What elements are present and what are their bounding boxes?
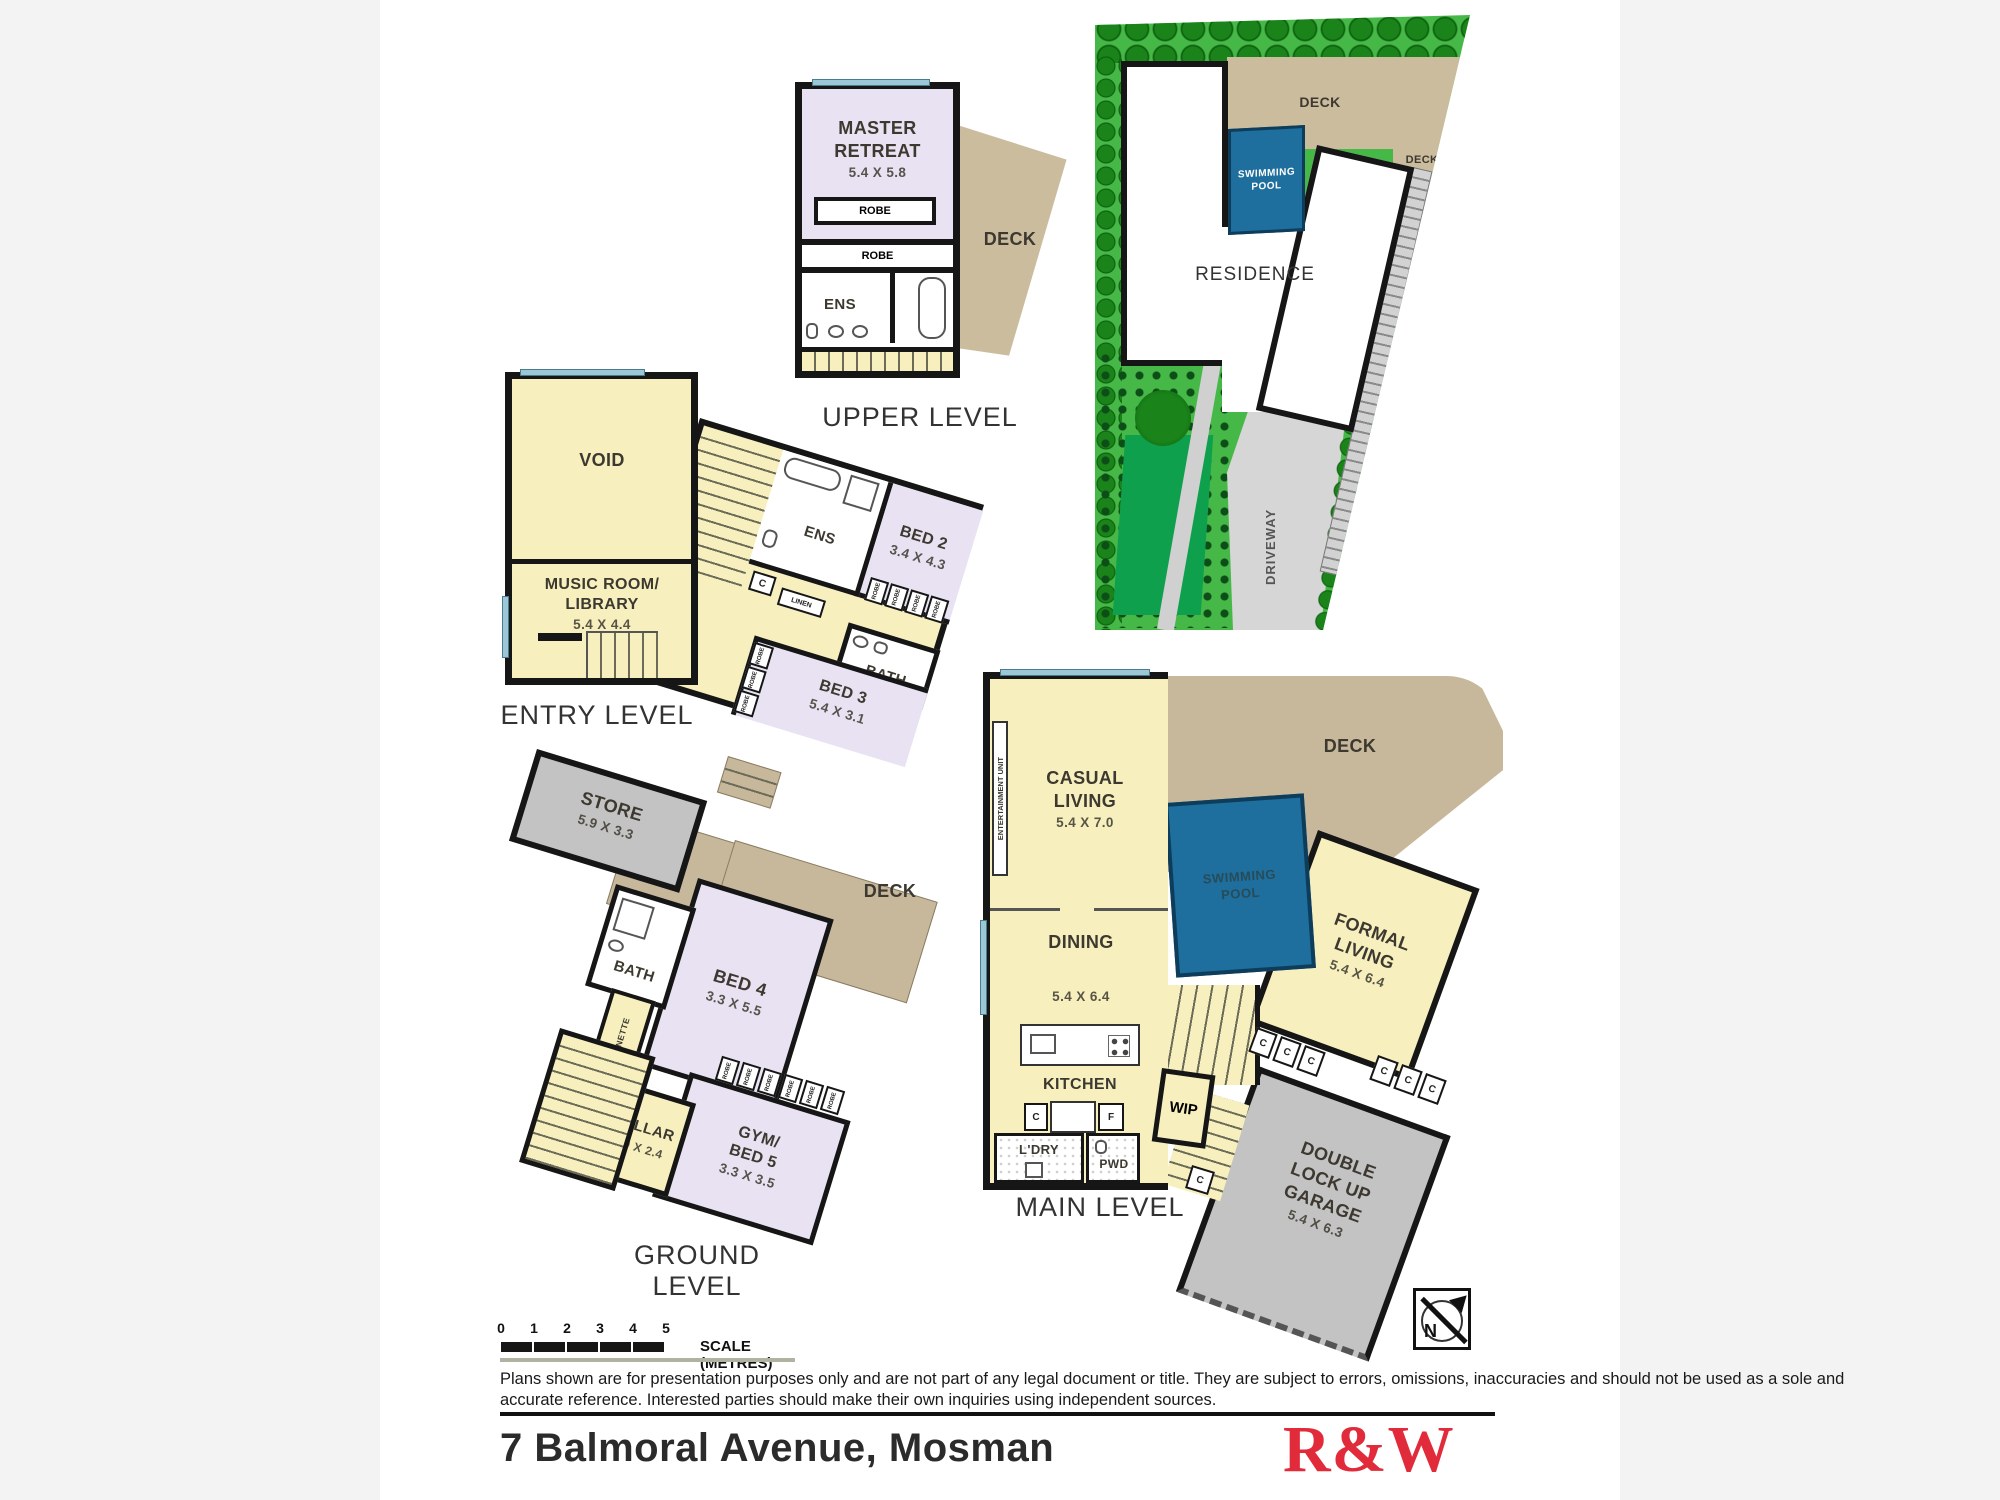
store-label: STORE5.9 X 3.3	[533, 775, 684, 859]
kitchen-label: KITCHEN	[1022, 1075, 1138, 1095]
site-pool-label: SWIMMINGPOOL	[1238, 165, 1295, 194]
washer-icon	[1025, 1162, 1043, 1178]
main-pool: SWIMMINGPOOL	[1164, 793, 1316, 977]
fridge-tag: F	[1098, 1103, 1124, 1131]
main-pool-label: SWIMMINGPOOL	[1202, 866, 1278, 905]
powder-label: PWD	[1091, 1154, 1137, 1174]
entertainment-unit-label: ENTERTAINMENT UNIT	[996, 757, 1005, 840]
entry-ens-label: ENS	[788, 518, 851, 555]
site-residence-label: RESIDENCE	[1185, 263, 1325, 287]
entry-void-music-block: VOID MUSIC ROOM/LIBRARY5.4 X 4.4	[505, 372, 698, 685]
site-pool: SWIMMINGPOOL	[1228, 125, 1305, 235]
floorplan-page: DECK MASTER RETREAT5.4 X 5.8 ROBE ROBE E…	[0, 0, 2000, 1500]
ground-deck-label: DECK	[845, 880, 935, 903]
basin-icon	[607, 938, 626, 954]
entry-bed2-label: BED 23.4 X 4.3	[874, 516, 968, 579]
upper-deck-label: DECK	[965, 228, 1055, 251]
bathtub-icon	[781, 455, 843, 493]
casual-living-label: CASUALLIVING5.4 X 7.0	[1030, 767, 1140, 833]
void-label: VOID	[532, 449, 672, 472]
entry-linen-tag: LINEN	[777, 587, 826, 618]
wip-label: WIP	[1168, 1098, 1198, 1119]
bathtub-icon	[918, 277, 946, 339]
music-shelf	[538, 633, 582, 641]
shower-icon	[612, 897, 654, 939]
basin-icon	[828, 325, 844, 338]
disclaimer-line-1: Plans shown are for presentation purpose…	[500, 1370, 1844, 1389]
agency-logo: R&W	[1283, 1412, 1455, 1488]
toilet-icon	[806, 323, 818, 339]
formal-living-label: FORMALLIVING5.4 X 6.4	[1307, 904, 1424, 1000]
scale-units-label: SCALE (METRES)	[700, 1338, 772, 1372]
master-retreat-label: MASTER RETREAT5.4 X 5.8	[810, 117, 945, 183]
entry-bed3-label: BED 35.4 X 3.1	[786, 669, 893, 736]
garage-label: DOUBLELOCK UPGARAGE5.4 X 6.3	[1256, 1129, 1399, 1254]
hall-robe-strip: ROBE	[802, 239, 953, 273]
entry-window-top	[520, 369, 645, 376]
scale-tick-label: 4	[626, 1320, 640, 1336]
ensuite-area: ENS	[802, 273, 953, 347]
disclaimer-line-2: accurate reference. Interested parties s…	[500, 1391, 1216, 1410]
basin-icon	[851, 634, 870, 650]
upper-window	[812, 79, 930, 86]
entry-window-left	[502, 596, 509, 658]
laundry-label: L'DRY	[1001, 1140, 1077, 1160]
powder-room: PWD	[1086, 1133, 1140, 1183]
casual-dining-divider	[990, 908, 1060, 911]
kitchen-c-tag: C	[1024, 1103, 1048, 1131]
toilet-icon	[760, 528, 779, 549]
toilet-icon	[1095, 1140, 1107, 1154]
property-address: 7 Balmoral Avenue, Mosman	[500, 1426, 1054, 1471]
site-driveway-label: DRIVEWAY	[1263, 465, 1278, 585]
scale-tick-label: 3	[593, 1320, 607, 1336]
scale-tick-label: 5	[659, 1320, 673, 1336]
kitchen-island	[1020, 1024, 1140, 1066]
void-music-divider	[512, 559, 691, 564]
ground-bath-label: BATH	[602, 954, 665, 991]
main-window-top	[1000, 669, 1150, 676]
kitchen-counter	[1050, 1101, 1096, 1133]
casual-dining-divider	[1094, 908, 1168, 911]
scale-bar	[501, 1342, 666, 1352]
shower-icon	[842, 475, 879, 512]
basin-icon	[852, 325, 868, 338]
north-label: N	[1424, 1321, 1437, 1342]
scale-tick-label: 2	[560, 1320, 574, 1336]
wip-pantry: WIP	[1152, 1068, 1216, 1149]
north-compass: N	[1413, 1288, 1471, 1350]
entertainment-unit: ENTERTAINMENT UNIT	[992, 721, 1008, 876]
upper-level-title: UPPER LEVEL	[820, 402, 1020, 433]
scale-tick-label: 1	[527, 1320, 541, 1336]
toilet-icon	[872, 640, 889, 656]
entry-level-title: ENTRY LEVEL	[497, 700, 697, 731]
sink-icon	[1030, 1034, 1056, 1054]
scale-tick-label: 0	[494, 1320, 508, 1336]
upper-stairs	[802, 347, 953, 371]
bed4-label: BED 43.3 X 5.5	[683, 958, 791, 1028]
master-robe-box: ROBE	[814, 197, 936, 225]
main-window-left	[980, 920, 987, 1015]
site-big-tree-icon	[1135, 390, 1191, 446]
scale-underline	[500, 1358, 795, 1362]
site-deck-label: DECK	[1280, 93, 1360, 113]
music-stairs	[586, 631, 658, 678]
ground-level-title: GROUND LEVEL	[592, 1240, 802, 1302]
music-room-label: MUSIC ROOM/LIBRARY5.4 X 4.4	[520, 575, 684, 635]
master-retreat-room: MASTER RETREAT5.4 X 5.8 ROBE ROBE ENS	[795, 82, 960, 378]
main-level-title: MAIN LEVEL	[1010, 1192, 1190, 1223]
cooktop-icon	[1108, 1035, 1130, 1057]
entry-c-tag: C	[748, 570, 777, 596]
dining-dim-label: 5.4 X 6.4	[1026, 987, 1136, 1007]
ensuite-label: ENS	[810, 295, 870, 315]
gym-bed5-label: GYM/BED 53.3 X 3.5	[696, 1114, 809, 1201]
laundry-room: L'DRY	[994, 1133, 1084, 1183]
main-left-block: ENTERTAINMENT UNIT CASUALLIVING5.4 X 7.0…	[983, 672, 1168, 1190]
dining-label: DINING	[1026, 931, 1136, 954]
site-residence-left-wing	[1121, 61, 1228, 366]
main-deck-label: DECK	[1305, 735, 1395, 758]
ens-divider-wall	[890, 273, 895, 343]
